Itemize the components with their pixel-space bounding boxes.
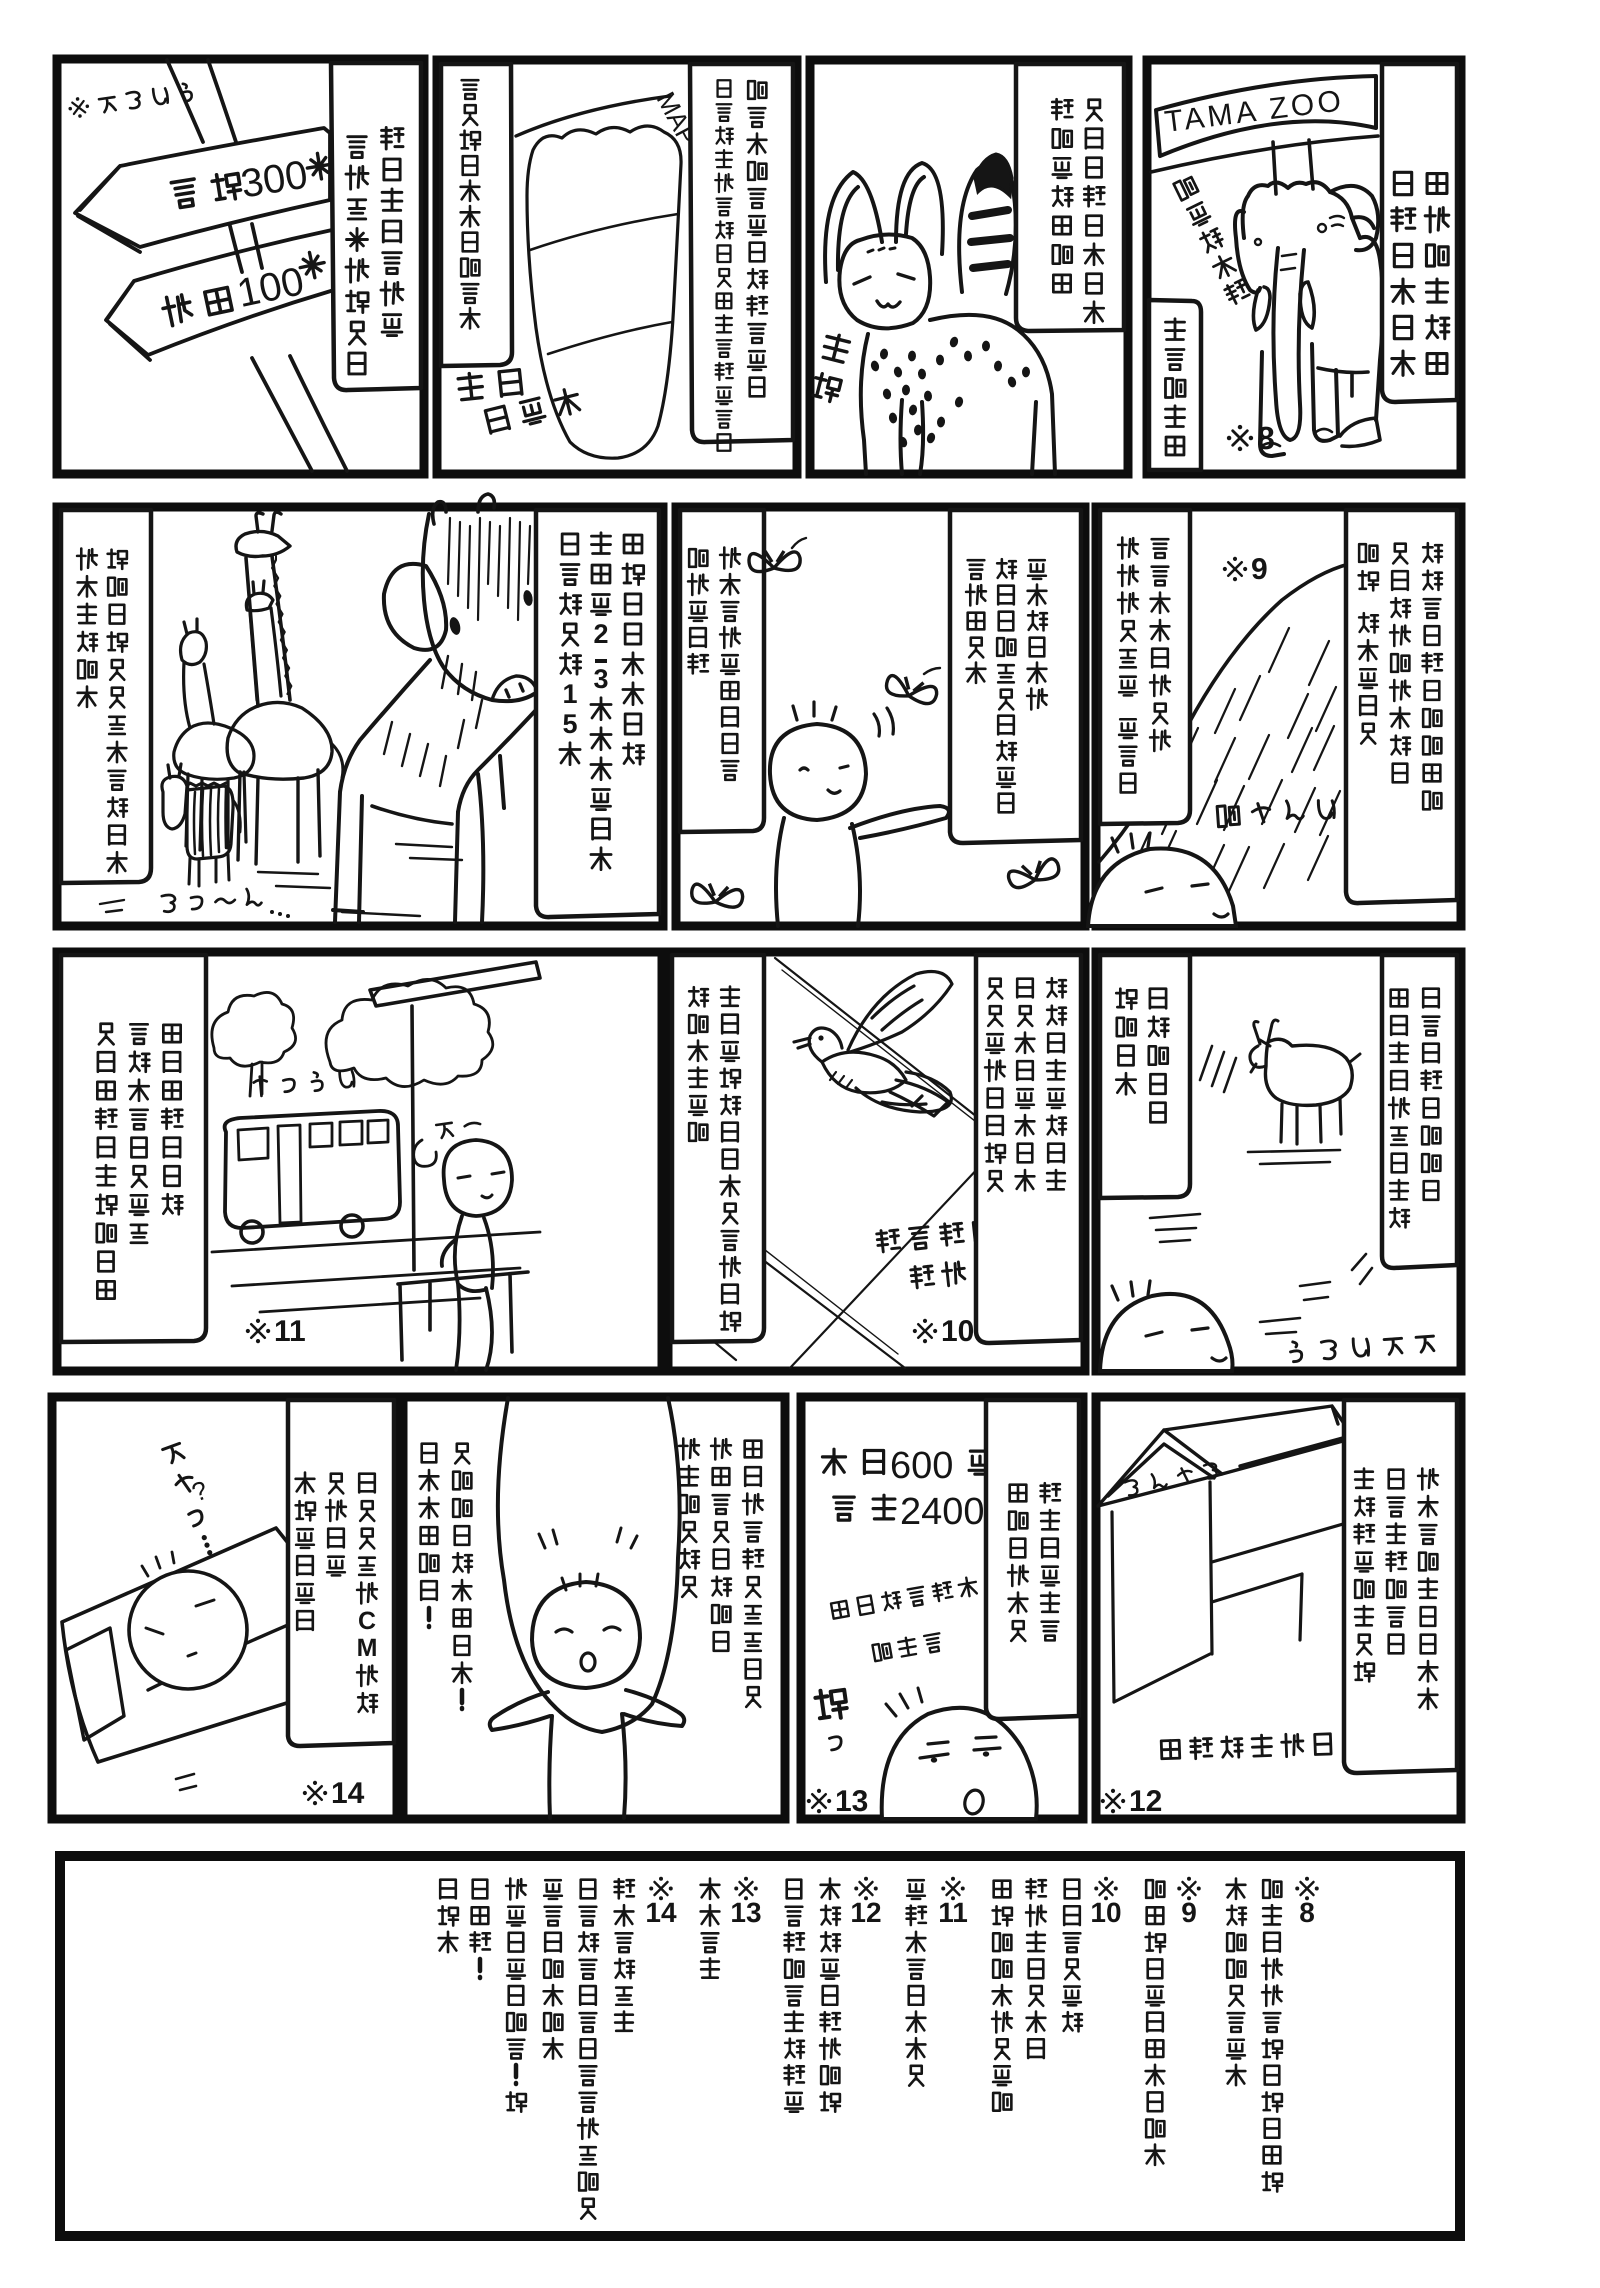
svg-text:2400: 2400 [900, 1491, 985, 1533]
svg-text:10: 10 [1090, 1897, 1121, 1928]
svg-text:14: 14 [331, 1777, 365, 1810]
svg-text:2: 2 [593, 619, 608, 649]
svg-text:11: 11 [938, 1897, 968, 1928]
svg-text:600: 600 [890, 1445, 953, 1487]
svg-text:13: 13 [730, 1897, 761, 1928]
svg-text:1: 1 [562, 679, 577, 709]
svg-text:13: 13 [835, 1785, 868, 1818]
svg-text:M: M [357, 1634, 378, 1662]
svg-text:8: 8 [1257, 420, 1275, 456]
svg-text:3: 3 [593, 664, 608, 694]
svg-text:12: 12 [1129, 1785, 1162, 1818]
svg-text:C: C [358, 1607, 376, 1635]
svg-text:11: 11 [274, 1315, 306, 1348]
svg-text:8: 8 [1299, 1897, 1315, 1928]
svg-text:14: 14 [645, 1897, 677, 1928]
svg-text:12: 12 [850, 1897, 881, 1928]
svg-text:9: 9 [1251, 553, 1268, 586]
svg-text:5: 5 [562, 709, 577, 739]
svg-text:10: 10 [941, 1315, 974, 1348]
svg-text:9: 9 [1181, 1897, 1197, 1928]
